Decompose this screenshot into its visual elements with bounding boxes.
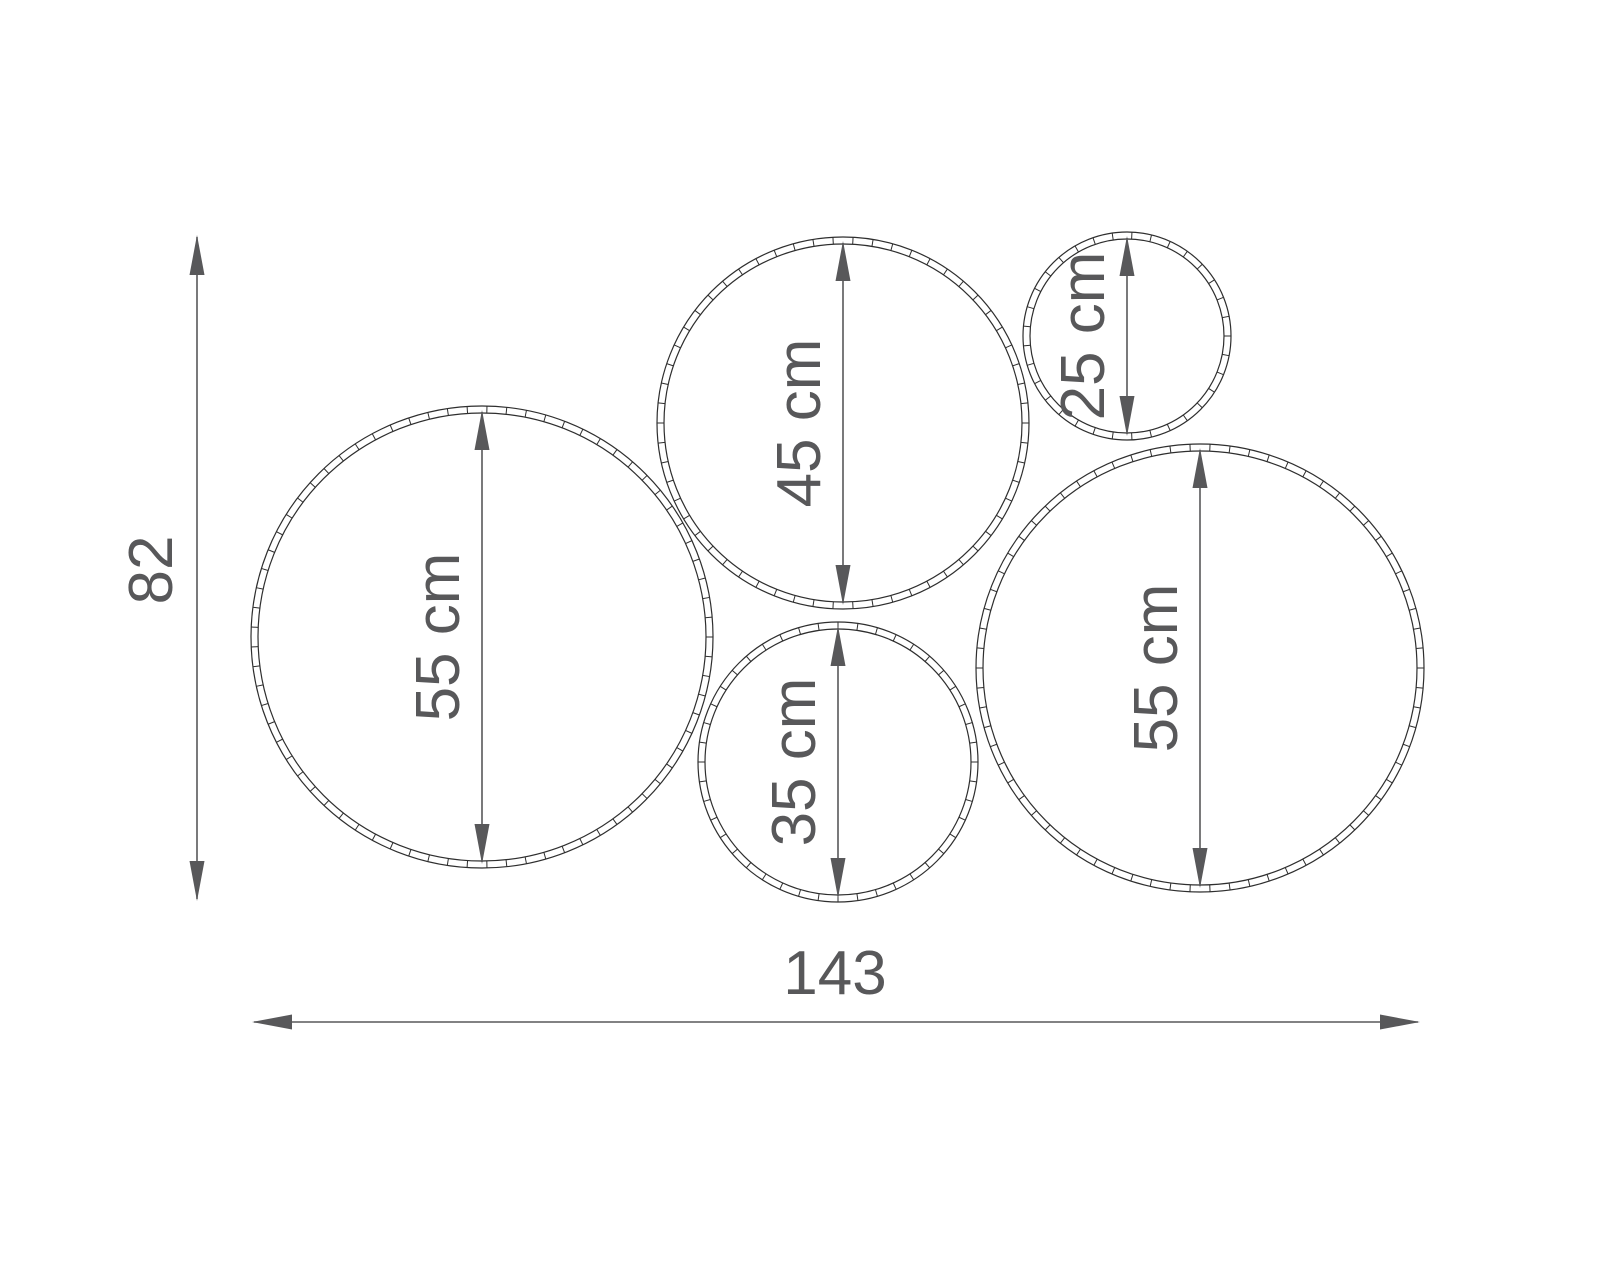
circle-label-35cm: 35 cm (764, 678, 826, 847)
circle-label-45cm: 45 cm (769, 339, 831, 508)
circle-label-55cm-left: 55 cm (408, 553, 470, 722)
dimension-drawing: 55 cm 45 cm 25 cm 35 cm 55 cm 82 143 (0, 0, 1600, 1280)
overall-width-dimension (252, 1015, 1420, 1030)
circle-label-55cm-right: 55 cm (1126, 584, 1188, 753)
overall-height-label: 82 (121, 536, 183, 605)
diameter-arrow-left-large (475, 410, 490, 864)
overall-width-label: 143 (783, 943, 886, 1005)
diameter-arrow-right-large (1193, 448, 1208, 888)
circle-label-25cm: 25 cm (1053, 252, 1115, 421)
drawing-svg (0, 0, 1600, 1280)
diameter-arrow-top-middle (836, 241, 851, 605)
overall-height-dimension (190, 235, 205, 901)
diameter-arrow-top-right-small (1120, 236, 1135, 436)
diameter-arrow-bottom-middle (831, 626, 846, 898)
